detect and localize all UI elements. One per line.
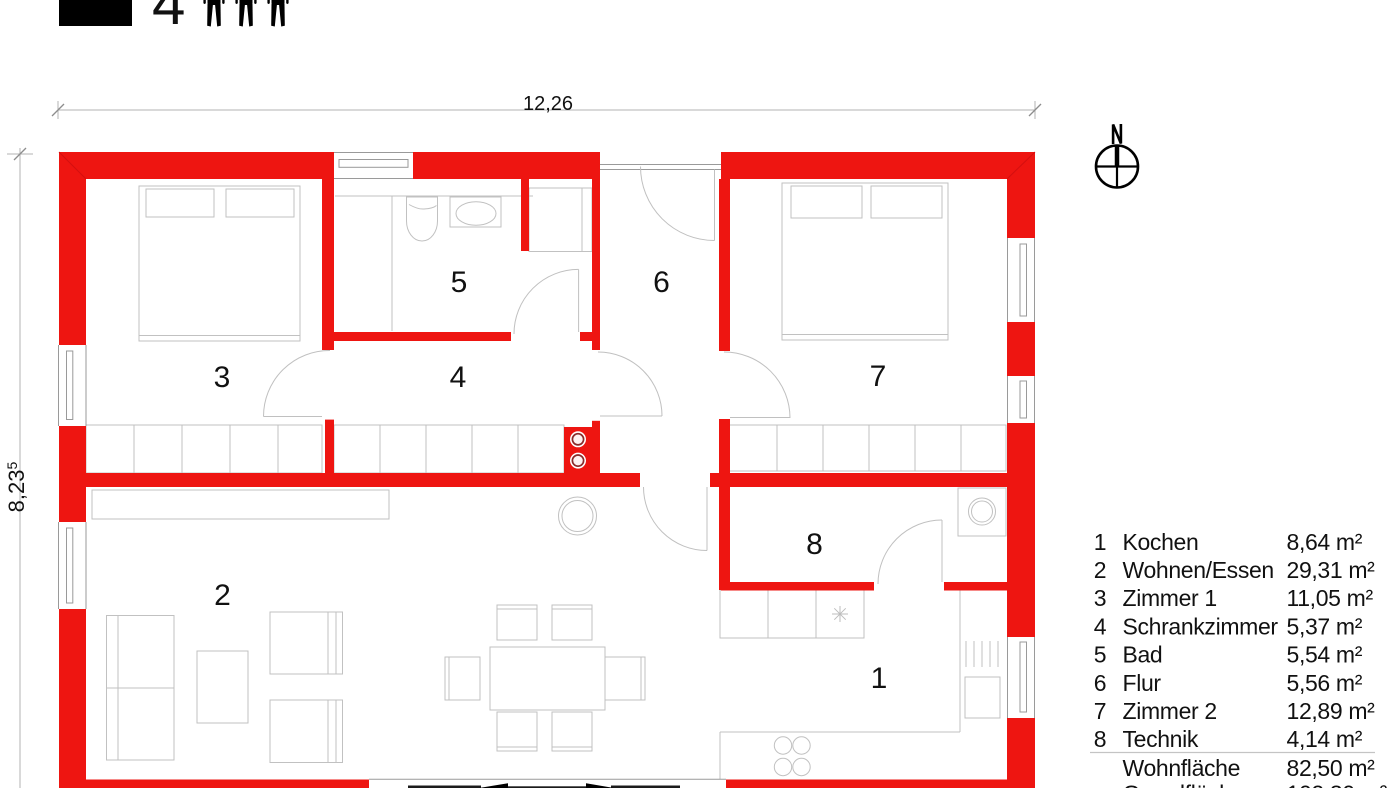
svg-text:4,14 m²: 4,14 m²: [1287, 726, 1363, 752]
svg-text:3: 3: [214, 361, 231, 394]
svg-text:3: 3: [1094, 585, 1106, 611]
svg-text:5,37 m²: 5,37 m²: [1287, 613, 1363, 639]
svg-text:8: 8: [806, 528, 823, 561]
svg-text:5,56 m²: 5,56 m²: [1287, 670, 1363, 696]
svg-text:29,31 m²: 29,31 m²: [1287, 557, 1376, 583]
svg-text:Zimmer 1: Zimmer 1: [1123, 585, 1217, 611]
svg-text:7: 7: [870, 360, 887, 393]
svg-text:102,30 m²: 102,30 m²: [1287, 781, 1388, 788]
svg-text:1: 1: [871, 662, 888, 695]
svg-text:Wohnen/Essen: Wohnen/Essen: [1123, 557, 1274, 583]
svg-text:1: 1: [1094, 529, 1106, 555]
svg-text:Zimmer 2: Zimmer 2: [1123, 698, 1217, 724]
svg-text:82,50 m²: 82,50 m²: [1287, 755, 1376, 781]
svg-text:6: 6: [653, 266, 670, 299]
svg-text:Schrankzimmer: Schrankzimmer: [1123, 613, 1279, 639]
svg-text:5: 5: [1094, 642, 1106, 668]
svg-text:5,54 m²: 5,54 m²: [1287, 642, 1363, 668]
svg-text:12,26: 12,26: [523, 93, 573, 115]
svg-text:4: 4: [450, 361, 467, 394]
svg-text:Technik: Technik: [1123, 726, 1199, 752]
svg-text:6: 6: [1094, 670, 1106, 696]
svg-text:Bad: Bad: [1123, 642, 1163, 668]
svg-text:Kochen: Kochen: [1123, 529, 1199, 555]
svg-text:7: 7: [1094, 698, 1106, 724]
svg-text:8: 8: [1094, 726, 1106, 752]
svg-text:Wohnfläche: Wohnfläche: [1123, 755, 1241, 781]
svg-text:11,05 m²: 11,05 m²: [1287, 585, 1374, 611]
svg-text:Grundfläche: Grundfläche: [1123, 781, 1244, 788]
svg-text:4: 4: [152, 0, 185, 37]
svg-text:Flur: Flur: [1123, 670, 1162, 696]
svg-text:12,89 m²: 12,89 m²: [1287, 698, 1376, 724]
svg-text:8,64 m²: 8,64 m²: [1287, 529, 1363, 555]
svg-text:2: 2: [214, 579, 231, 612]
svg-text:4: 4: [1094, 613, 1107, 639]
svg-text:5: 5: [451, 266, 468, 299]
svg-text:2: 2: [1094, 557, 1106, 583]
